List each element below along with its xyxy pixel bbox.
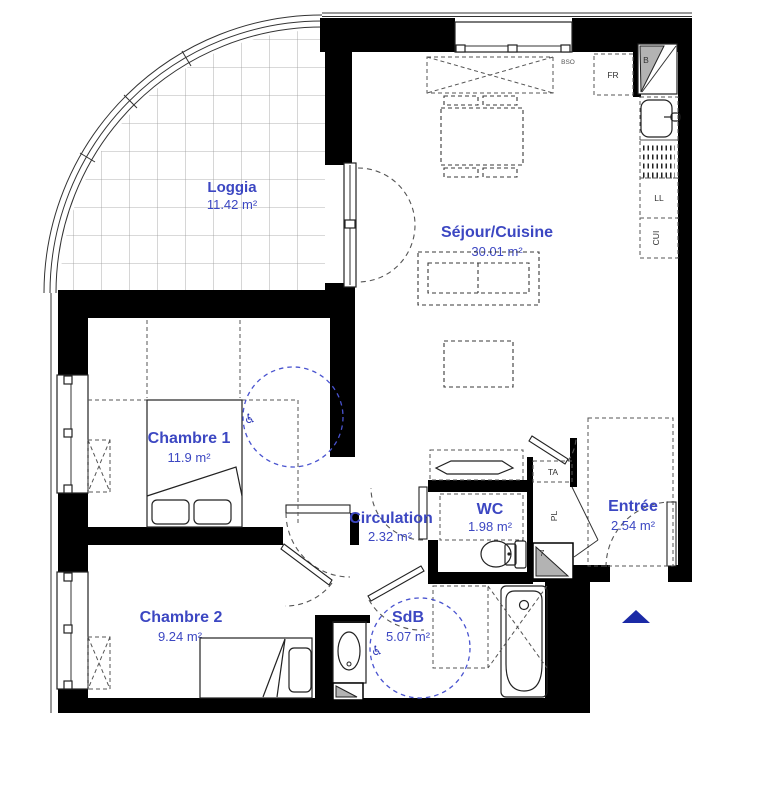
room-label-entree: Entrée — [608, 498, 658, 515]
wall-wc-right — [527, 457, 533, 580]
accessibility-icon: ♿ — [371, 644, 383, 659]
sejour-cuisine-zone: Séjour/Cuisine 30.01 m² FR — [418, 44, 680, 480]
loggia-zone: Loggia 11.42 m² — [40, 10, 330, 295]
pillow — [152, 500, 189, 524]
wall-left-upper — [58, 318, 88, 377]
room-label-chambre1: Chambre 1 — [148, 430, 231, 447]
window-sejour-top — [455, 22, 572, 52]
loggia-tile-floor — [40, 10, 330, 295]
window-blind-bso: BSO — [427, 57, 575, 93]
closet-label: PL — [549, 511, 559, 522]
kitchen-corner-unit: B — [638, 44, 677, 94]
pillow — [289, 648, 311, 692]
wall-left-mid — [58, 491, 88, 574]
console-above-wc — [430, 450, 523, 480]
wall-loggia-right-upper — [325, 40, 352, 165]
cooker: CUI — [640, 218, 678, 258]
wall-entree-bottom-right — [668, 565, 692, 582]
room-label-sdb: SdB — [392, 609, 424, 626]
sdb-duct — [333, 683, 363, 700]
sdb-clearance — [433, 586, 488, 668]
room-area-circulation: 2.32 m² — [368, 529, 413, 544]
closet-guides — [88, 320, 298, 524]
room-area-entree: 2.54 m² — [611, 518, 656, 533]
window-chambre1 — [57, 375, 110, 493]
room-area-chambre2: 9.24 m² — [158, 629, 203, 644]
pillow — [194, 500, 231, 524]
room-area-chambre1: 11.9 m² — [167, 450, 211, 465]
entree-area-outline — [588, 418, 673, 566]
room-label-circulation: Circulation — [349, 510, 433, 527]
door-chambre1 — [286, 505, 350, 577]
wall-entree-stub — [570, 438, 577, 487]
room-label-sejour: Séjour/Cuisine — [441, 224, 553, 241]
wall-wc-top — [428, 480, 533, 492]
fridge-label: FR — [607, 70, 618, 80]
door-chambre2 — [281, 544, 332, 606]
room-label-chambre2: Chambre 2 — [140, 609, 223, 626]
washing-machine: LL — [640, 178, 678, 218]
sdb-zone: SdB 5.07 m² ♿ — [333, 586, 547, 700]
chambre1-zone: Chambre 1 11.9 m² ♿ — [88, 320, 343, 527]
wc-zone: WC 1.98 m² — [440, 494, 526, 568]
bso-label: BSO — [561, 59, 575, 66]
room-area-wc: 1.98 m² — [468, 519, 513, 534]
duct-number-label: 7 — [540, 548, 545, 558]
washing-machine-label: LL — [654, 193, 664, 203]
chair — [444, 96, 478, 105]
bathtub — [488, 586, 547, 697]
chair — [444, 168, 478, 177]
door-loggia — [344, 163, 415, 287]
kitchen-sink — [640, 97, 680, 140]
accessibility-circle — [243, 367, 343, 467]
entrance-arrow-icon — [622, 610, 650, 623]
kitchen-worktop-hatch — [640, 140, 678, 178]
room-area-loggia: 11.42 m² — [207, 197, 258, 212]
wall-loggia-bottom — [58, 290, 352, 318]
door-sejour-entree — [529, 436, 576, 464]
cooker-label: CUI — [651, 231, 661, 246]
vanity-washbasin — [333, 622, 366, 683]
chair — [483, 168, 517, 177]
wall-outer-lower-right — [560, 582, 590, 713]
chair — [483, 96, 517, 105]
toilet — [481, 541, 526, 568]
tv-stand — [444, 341, 513, 387]
floor-plan: Loggia 11.42 m² — [0, 0, 773, 800]
sofa — [418, 252, 539, 305]
floor-plan-page: Loggia 11.42 m² — [0, 0, 773, 800]
accessibility-icon: ♿ — [244, 412, 256, 427]
corner-unit-label: B — [643, 55, 649, 65]
wall-chambre-divider — [88, 527, 283, 545]
technical-access-label: TA — [548, 467, 559, 477]
dining-table — [441, 96, 523, 177]
single-bed — [200, 638, 312, 698]
wall-bottom — [58, 698, 590, 713]
wall-sdb-left — [315, 615, 333, 700]
room-area-sdb: 5.07 m² — [386, 629, 431, 644]
wall-right — [678, 18, 692, 582]
technical-access-box: TA — [533, 461, 572, 482]
wall-wc-bottom — [428, 572, 533, 584]
chambre2-zone: Chambre 2 9.24 m² — [140, 609, 312, 698]
room-label-wc: WC — [477, 501, 504, 518]
room-label-loggia: Loggia — [207, 179, 257, 196]
technical-duct: 7 — [533, 543, 573, 579]
window-chambre2 — [57, 572, 110, 689]
